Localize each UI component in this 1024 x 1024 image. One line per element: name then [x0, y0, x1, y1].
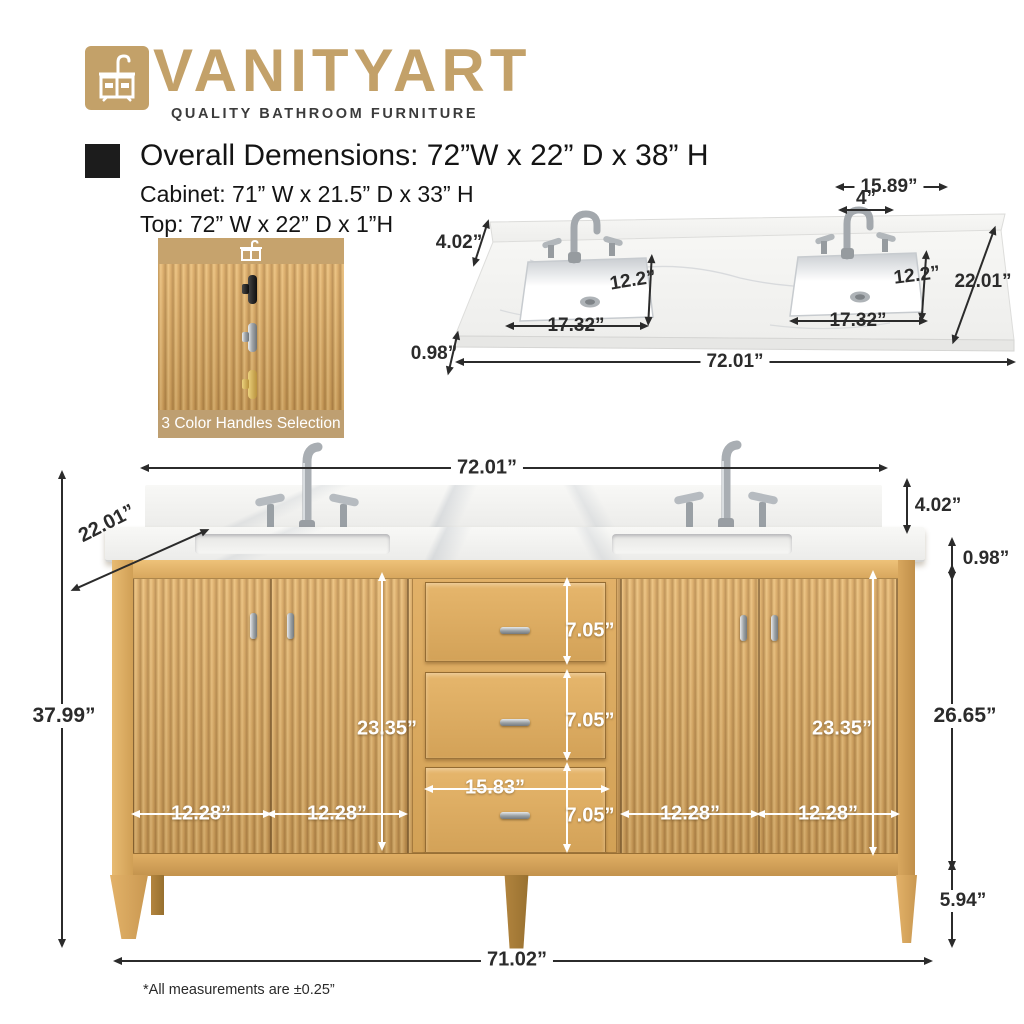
measurement-tolerance-footnote: *All measurements are ±0.25” [143, 982, 335, 998]
dim-arrow [381, 580, 383, 843]
dim-label-door-width-2: 12.28” [307, 803, 367, 826]
cabinet-right-stile [898, 560, 915, 875]
dim-label-door-height-left: 23.35” [357, 718, 417, 741]
handle-option-chrome-nub [242, 332, 249, 342]
dim-label-total-width-top: 72.01” [700, 351, 769, 373]
door-handle-2 [287, 613, 294, 639]
vanity-leg-center [503, 875, 530, 955]
dim-arrow [906, 486, 908, 526]
dim-label-front-total-width: 72.01” [451, 457, 523, 480]
cabinet-dimensions: Cabinet: 71” W x 21.5” D x 33” H [140, 181, 474, 208]
dim-label-sink-width-left: 17.32” [547, 315, 604, 337]
dim-label-backsplash-height-top: 4.02” [436, 232, 482, 254]
front-faucet-right [666, 430, 786, 535]
drawer-handle-3 [500, 812, 530, 819]
dim-label-front-top-thickness: 0.98” [963, 548, 1009, 570]
mini-logo-icon [158, 238, 344, 264]
cabinet-top-rail [112, 560, 915, 579]
handles-card-top-band [158, 238, 344, 264]
dim-label-drawer-height-3: 7.05” [566, 805, 615, 828]
dim-label-leg-height: 5.94” [934, 890, 992, 912]
vanity-leg-front-left [110, 875, 148, 939]
handle-option-black [248, 275, 257, 304]
dim-label-cabinet-height: 26.65” [927, 704, 1002, 728]
vanity-leg-front-right [896, 875, 917, 943]
sink-drain-right-hole [855, 294, 865, 300]
handle-option-gold-nub [242, 379, 249, 389]
product-dimension-sheet: VANITYART QUALITY BATHROOM FURNITURE Ove… [0, 0, 1024, 1024]
vanity-cabinet-icon [85, 46, 149, 110]
cabinet-left-stile [112, 560, 133, 875]
dim-label-top-thickness-top: 0.98” [411, 343, 457, 365]
handles-selection-card: 3 Color Handles Selection [158, 238, 344, 438]
dim-label-door-height-right: 23.35” [812, 718, 872, 741]
dim-label-front-backsplash-height: 4.02” [915, 495, 961, 517]
dim-label-door-width-1: 12.28” [171, 803, 231, 826]
handle-option-black-nub [242, 284, 249, 294]
front-sink-hint-left [195, 534, 390, 554]
cabinet-bottom-rail [112, 853, 915, 876]
dim-label-drawer-height-1: 7.05” [566, 620, 615, 643]
handle-option-chrome [248, 323, 257, 352]
dim-label-total-height: 37.99” [26, 704, 101, 728]
brand-wordmark: VANITYART [153, 36, 531, 105]
front-countertop [105, 527, 925, 562]
vanity-cabinet [112, 560, 915, 875]
dim-label-total-depth-top: 22.01” [954, 271, 1011, 293]
dim-label-door-width-4: 12.28” [798, 803, 858, 826]
drawer-handle-1 [500, 627, 530, 634]
door-handle-4 [771, 615, 778, 641]
dim-label-drawer-width: 15.83” [465, 777, 525, 800]
dim-label-drawer-height-2: 7.05” [566, 710, 615, 733]
front-faucet-left [247, 432, 367, 537]
dim-label-sink-width-right: 17.32” [829, 310, 886, 332]
brand-tagline: QUALITY BATHROOM FURNITURE [171, 106, 478, 122]
front-sink-hint-right [612, 534, 792, 554]
door-handle-3 [740, 615, 747, 641]
door-handle-1 [250, 613, 257, 639]
dim-arrow [872, 578, 874, 848]
dim-label-base-width: 71.02” [481, 949, 553, 972]
dim-label-faucet-spread: 4” [856, 188, 876, 210]
handle-option-gold [248, 370, 257, 399]
sink-drain-left-hole [585, 299, 595, 305]
dim-label-door-width-3: 12.28” [660, 803, 720, 826]
heading-square-bullet [85, 144, 120, 178]
overall-dimensions-title: Overall Demensions: 72”W x 22” D x 38” H [140, 139, 709, 173]
brand-logo-icon [85, 46, 149, 110]
vanity-leg-back-left [151, 875, 164, 915]
drawer-handle-2 [500, 719, 530, 726]
top-dimensions: Top: 72” W x 22” D x 1”H [140, 211, 393, 238]
